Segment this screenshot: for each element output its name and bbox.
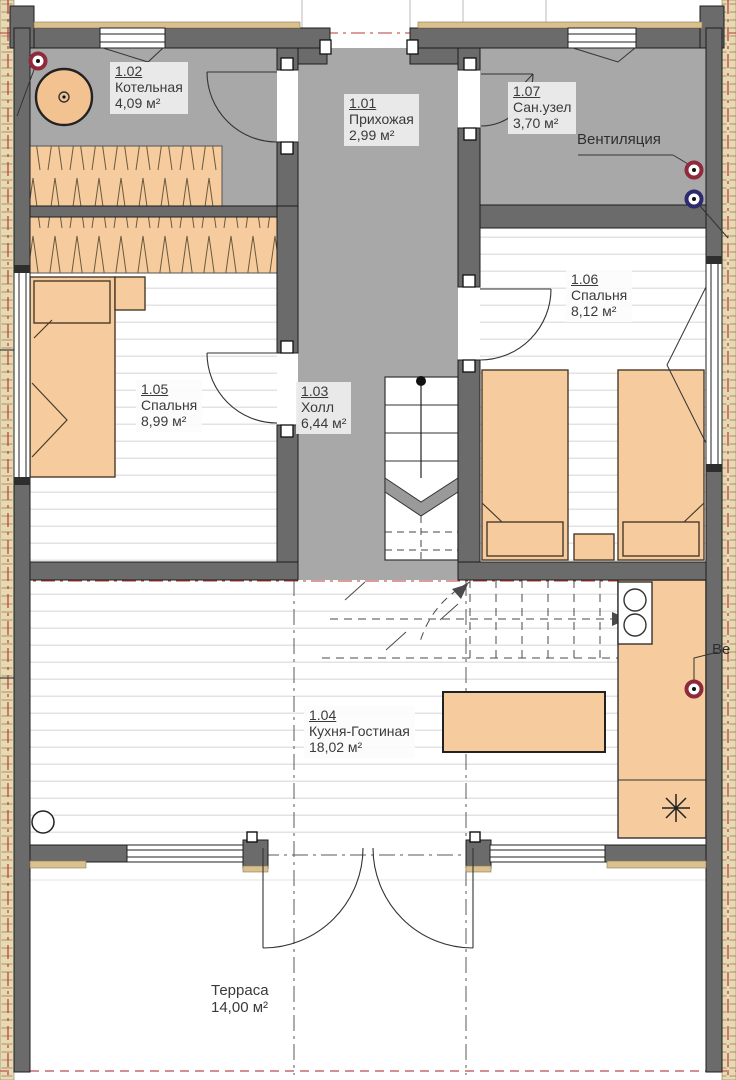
room-id: 1.03: [301, 384, 346, 400]
room-label-terrace: Терраса 14,00 м²: [206, 980, 274, 1018]
room-name: Спальня: [571, 288, 627, 304]
room-name: Спальня: [141, 398, 197, 414]
room-name: Прихожая: [349, 112, 414, 128]
room-label-entry-hall: 1.01 Прихожая 2,99 м²: [344, 94, 419, 146]
floor-terrace: [30, 862, 706, 1072]
room-area: 8,99 м²: [141, 414, 197, 430]
room-id: 1.01: [349, 96, 414, 112]
ventilation-label: Вентиляция: [577, 131, 661, 148]
room-label-bedroom-106: 1.06 Спальня 8,12 м²: [566, 270, 632, 322]
room-label-boiler-room: 1.02 Котельная 4,09 м²: [110, 62, 188, 114]
door-post: [466, 840, 491, 868]
room-name: Котельная: [115, 80, 183, 96]
room-name: Терраса: [211, 982, 269, 999]
room-id: 1.02: [115, 64, 183, 80]
room-id: 1.06: [571, 272, 627, 288]
floor-plan: 1.02 Котельная 4,09 м² 1.01 Прихожая 2,9…: [0, 0, 736, 1080]
dining-table: [443, 692, 605, 752]
staircase: [385, 376, 458, 560]
room-area: 3,70 м²: [513, 116, 571, 132]
room-area: 2,99 м²: [349, 128, 414, 144]
ventilation-label-clipped: Ве: [712, 641, 730, 658]
room-area: 18,02 м²: [309, 740, 410, 756]
room-label-bedroom-105: 1.05 Спальня 8,99 м²: [136, 380, 202, 432]
room-name: Сан.узел: [513, 100, 571, 116]
room-id: 1.07: [513, 84, 571, 100]
room-label-kitchen-living: 1.04 Кухня-Гостиная 18,02 м²: [304, 706, 415, 758]
room-label-bathroom: 1.07 Сан.узел 3,70 м²: [508, 82, 576, 134]
room-name: Холл: [301, 400, 346, 416]
door-post: [243, 840, 268, 868]
floor-plan-drawing: [0, 0, 736, 1080]
room-name: Кухня-Гостиная: [309, 724, 410, 740]
stair-start-dot: [416, 376, 426, 386]
kitchen-counter: [618, 580, 706, 838]
room-area: 6,44 м²: [301, 416, 346, 432]
room-area: 4,09 м²: [115, 96, 183, 112]
sink-symbol: [662, 794, 690, 822]
room-area: 14,00 м²: [211, 999, 269, 1016]
room-area: 8,12 м²: [571, 304, 627, 320]
nightstand: [574, 534, 614, 560]
column-circle: [32, 811, 54, 833]
room-label-hall: 1.03 Холл 6,44 м²: [296, 382, 351, 434]
room-id: 1.05: [141, 382, 197, 398]
room-id: 1.04: [309, 708, 410, 724]
nightstand: [115, 277, 145, 310]
